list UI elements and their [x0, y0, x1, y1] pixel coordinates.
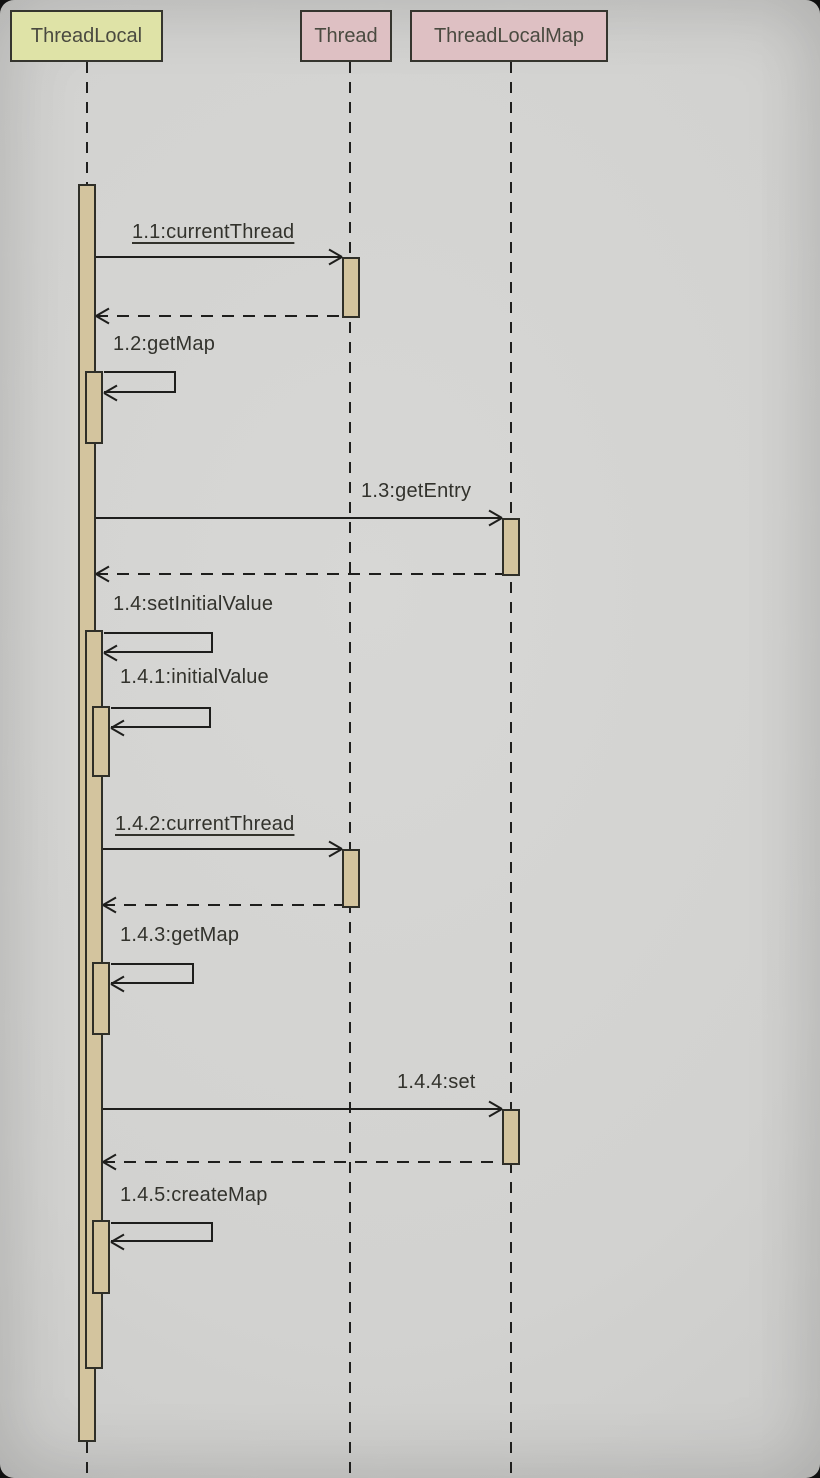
message-label-1-4-1: 1.4.1:initialValue: [120, 666, 269, 689]
arrowhead-right-icon: [326, 249, 342, 265]
arrowhead-left-icon: [96, 566, 112, 582]
participant-threadlocal-label: ThreadLocal: [31, 25, 142, 48]
activation-threadlocal-1-2: [85, 371, 103, 444]
arrowhead-right-icon: [326, 841, 342, 857]
message-label-1-4-4: 1.4.4:set: [397, 1071, 476, 1094]
message-label-1-4-5: 1.4.5:createMap: [120, 1184, 268, 1207]
message-label-1-1: 1.1:currentThread: [132, 221, 294, 244]
return-arrow-1-4-4: [103, 1161, 502, 1163]
activation-threadlocalmap-1-3: [502, 518, 520, 576]
participant-threadlocal: ThreadLocal: [10, 10, 163, 62]
arrowhead-left-icon: [103, 1154, 119, 1170]
return-arrow-1-1: [96, 315, 342, 317]
participant-thread-label: Thread: [314, 25, 377, 48]
return-arrow-1-4-2: [103, 904, 342, 906]
message-label-1-2: 1.2:getMap: [113, 333, 215, 356]
call-arrow-1-4-2: [103, 848, 342, 850]
participant-thread: Thread: [300, 10, 392, 62]
activation-threadlocalmap-1-4-4: [502, 1109, 520, 1165]
arrowhead-left-icon: [104, 385, 120, 401]
activation-thread-1-1: [342, 257, 360, 318]
self-call-loop-1-4: [104, 632, 213, 653]
message-label-1-4-2: 1.4.2:currentThread: [115, 813, 294, 836]
message-label-1-4: 1.4:setInitialValue: [113, 593, 273, 616]
arrowhead-left-icon: [111, 976, 127, 992]
sequence-diagram-canvas: ThreadLocal Thread ThreadLocalMap 1.1:cu…: [0, 0, 820, 1478]
arrowhead-left-icon: [104, 645, 120, 661]
arrowhead-left-icon: [111, 1234, 127, 1250]
call-arrow-1-1: [96, 256, 342, 258]
message-label-1-4-3: 1.4.3:getMap: [120, 924, 239, 947]
participant-threadlocalmap: ThreadLocalMap: [410, 10, 608, 62]
activation-threadlocal-1-4-3: [92, 962, 110, 1035]
arrowhead-right-icon: [486, 510, 502, 526]
participant-threadlocalmap-label: ThreadLocalMap: [434, 25, 584, 48]
activation-threadlocal-1-4-1: [92, 706, 110, 777]
activation-threadlocal-1-4-5: [92, 1220, 110, 1294]
return-arrow-1-3: [96, 573, 502, 575]
arrowhead-left-icon: [111, 720, 127, 736]
call-arrow-1-4-4: [103, 1108, 502, 1110]
message-label-1-3: 1.3:getEntry: [361, 480, 471, 503]
lifeline-threadlocalmap: [510, 62, 512, 1478]
arrowhead-right-icon: [486, 1101, 502, 1117]
call-arrow-1-3: [96, 517, 502, 519]
arrowhead-left-icon: [103, 897, 119, 913]
arrowhead-left-icon: [96, 308, 112, 324]
activation-thread-1-4-2: [342, 849, 360, 908]
